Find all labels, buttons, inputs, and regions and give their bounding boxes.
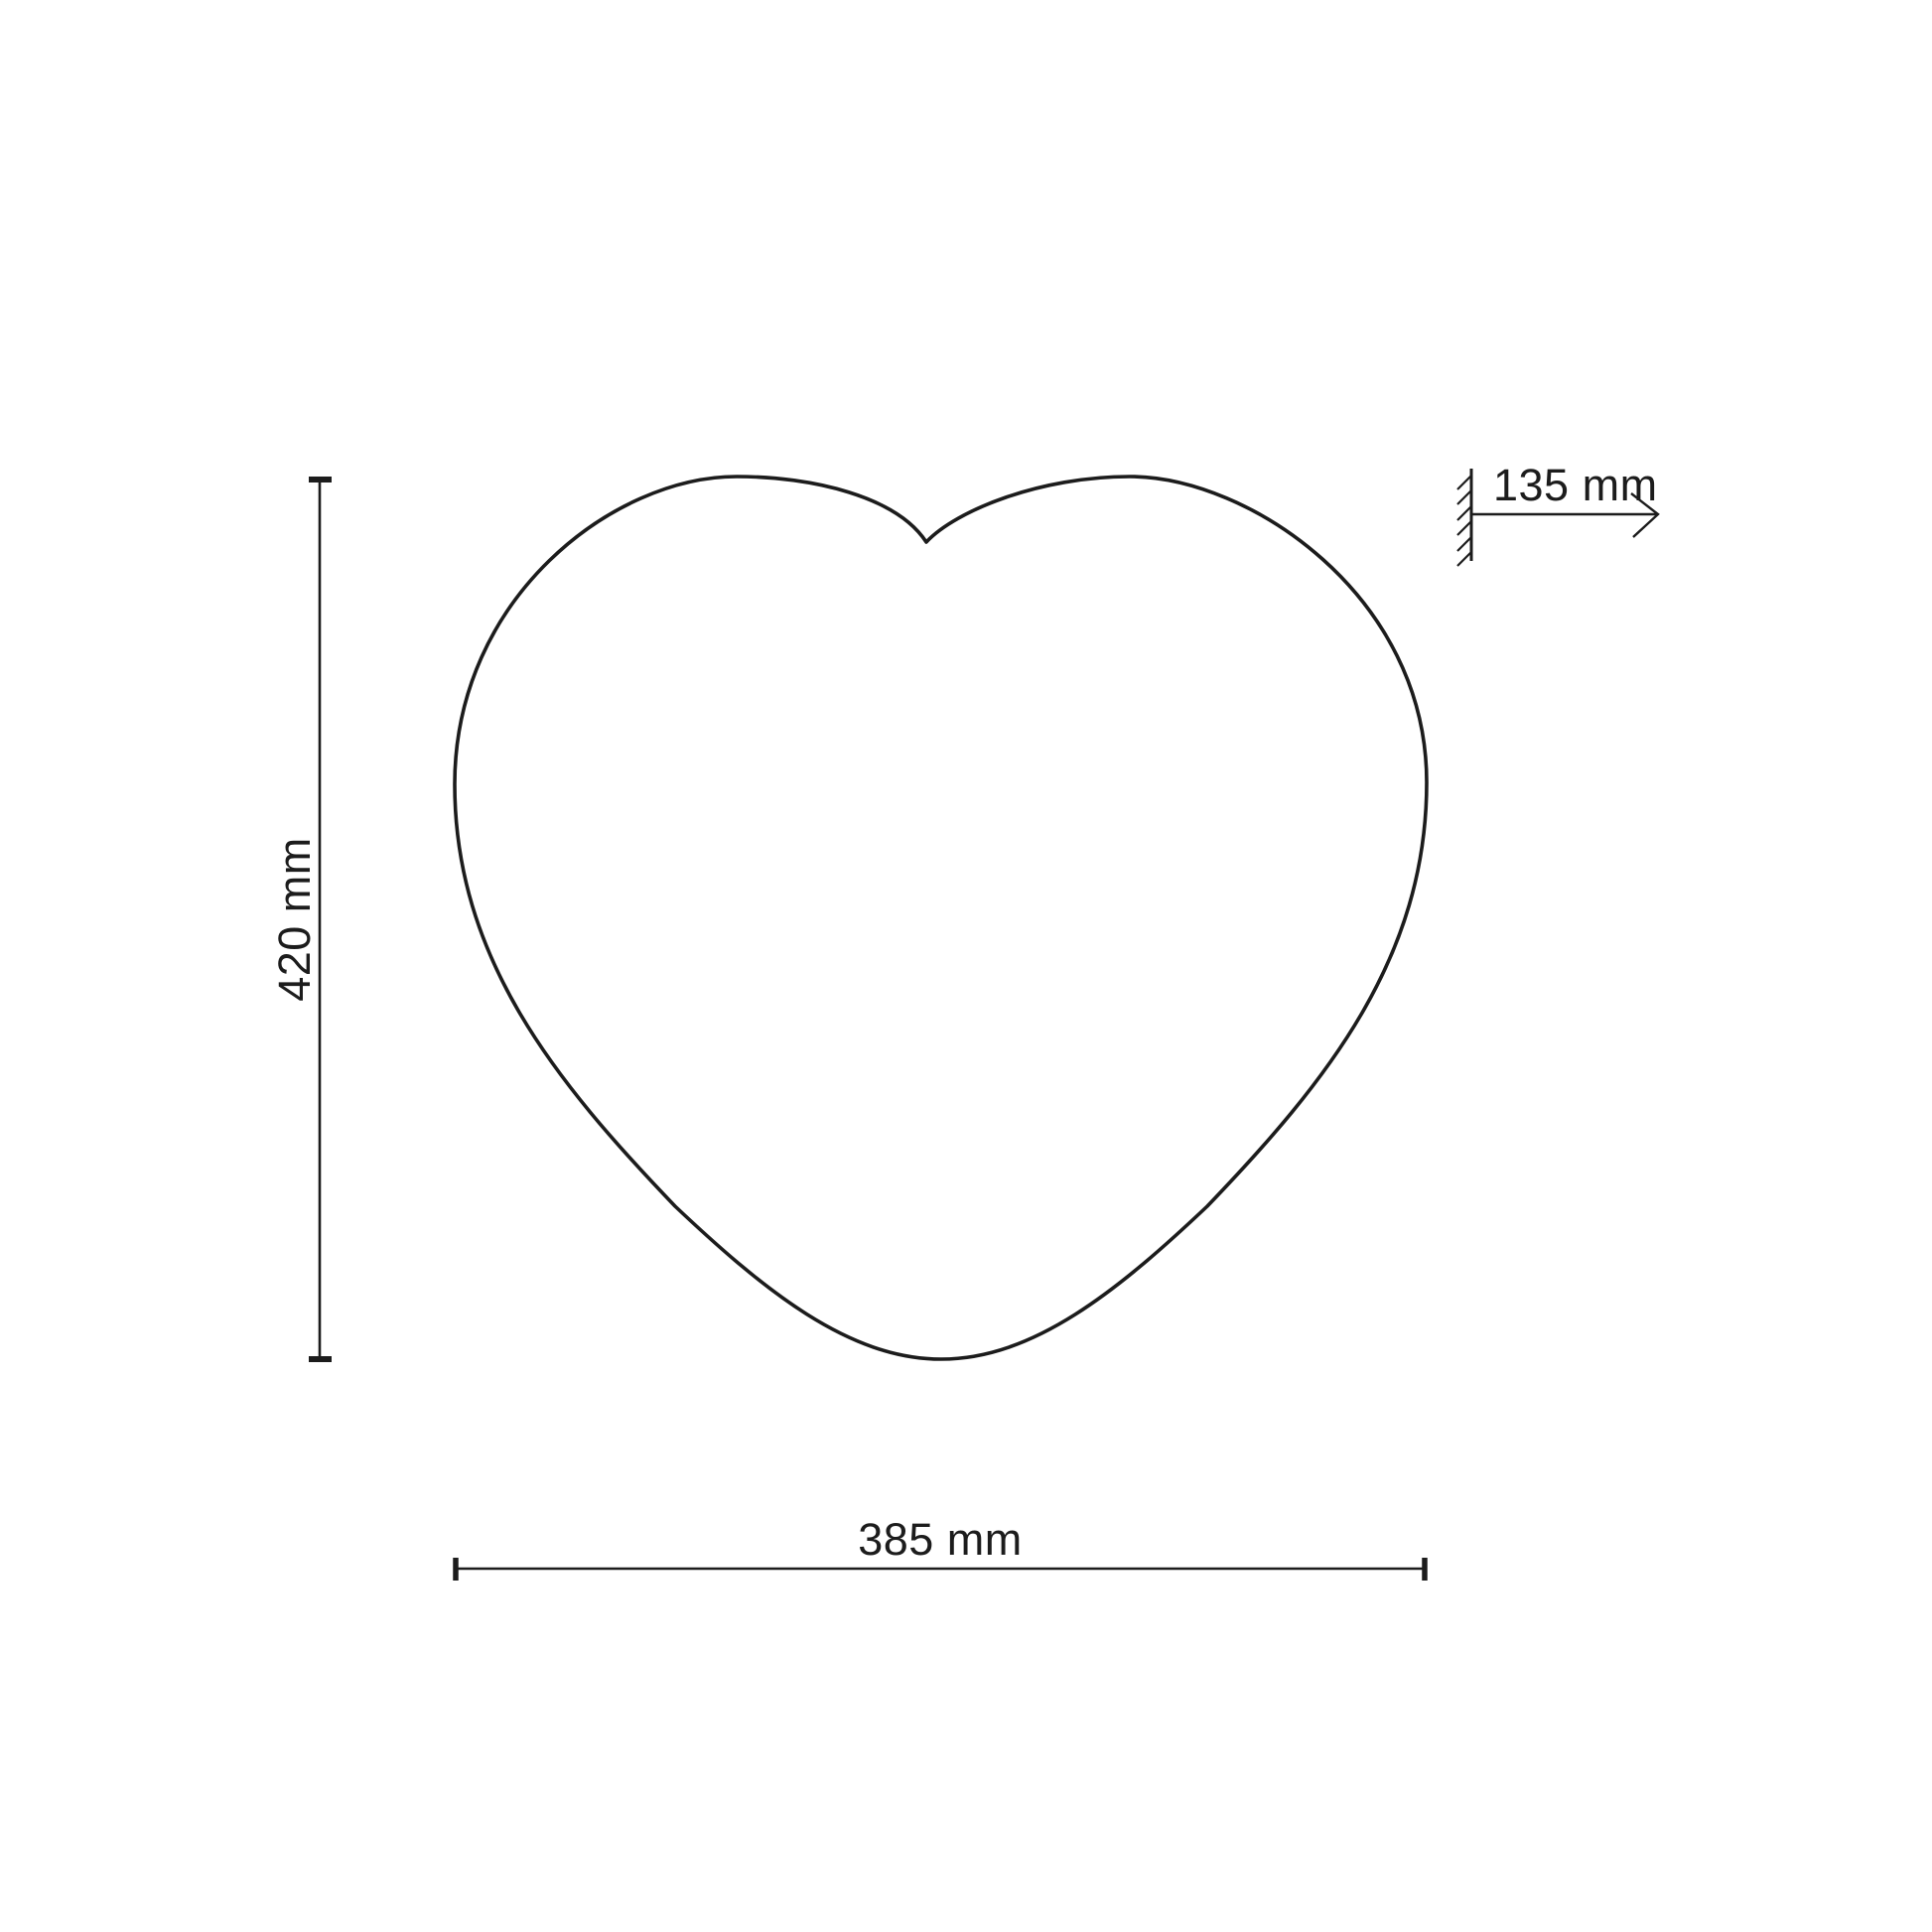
width-dimension-label: 385 mm [858,1514,1023,1565]
wall-hatching-icon [1457,476,1471,566]
heart-outline [455,477,1427,1359]
depth-dimension-label: 135 mm [1493,460,1658,510]
drawing-canvas: 420 mm 385 mm 135 mm [0,0,1932,1932]
dimension-drawing-svg: 420 mm 385 mm 135 mm [0,0,1932,1932]
height-dimension-label: 420 mm [269,837,320,1002]
